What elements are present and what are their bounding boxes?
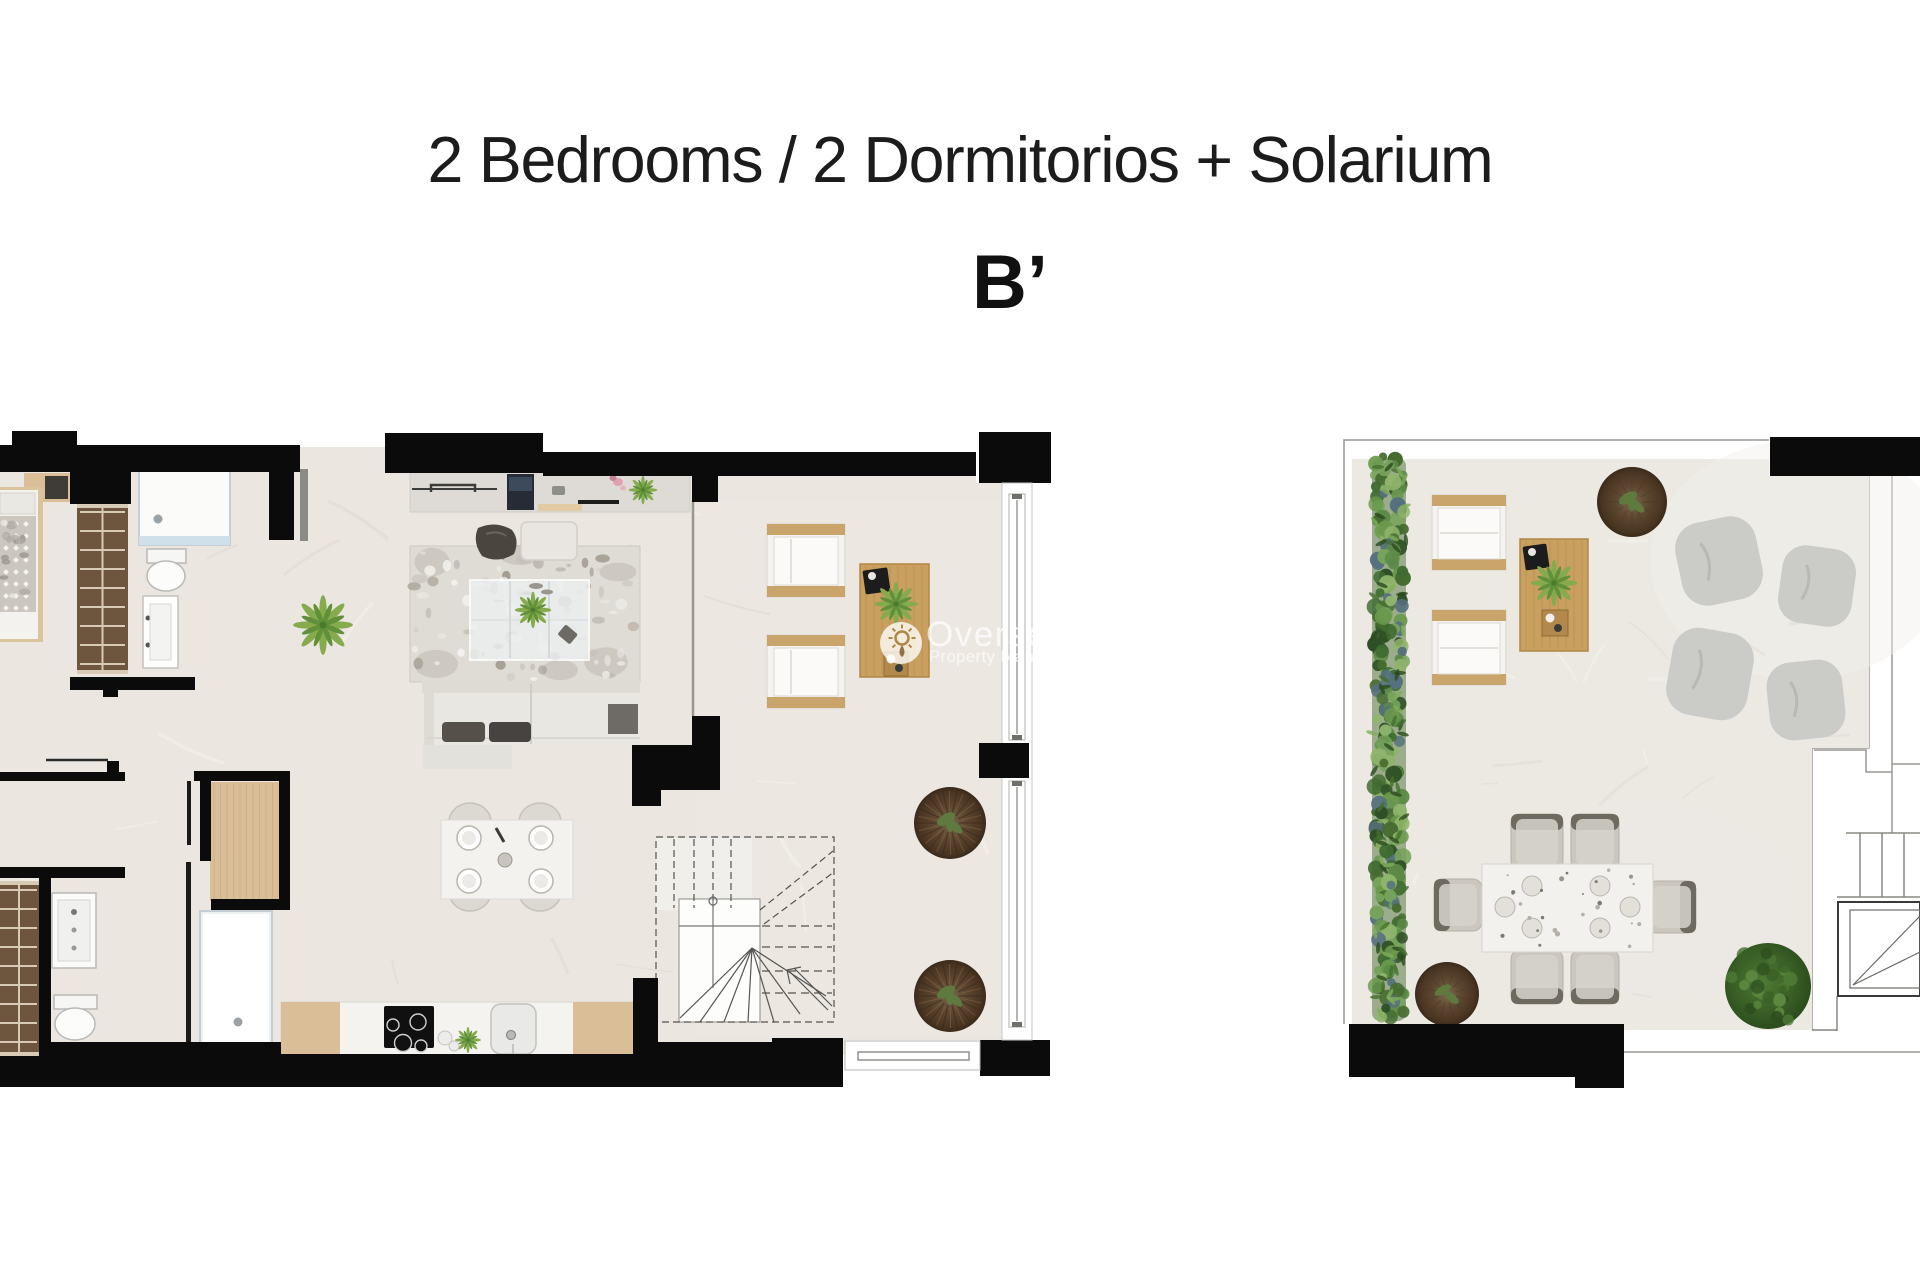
svg-text:Property Manag: Property Manag [929, 648, 1053, 666]
svg-text:2 Bedrooms / 2 Dormitorios + S: 2 Bedrooms / 2 Dormitorios + Solarium [428, 124, 1493, 196]
svg-text:B’: B’ [972, 240, 1048, 325]
